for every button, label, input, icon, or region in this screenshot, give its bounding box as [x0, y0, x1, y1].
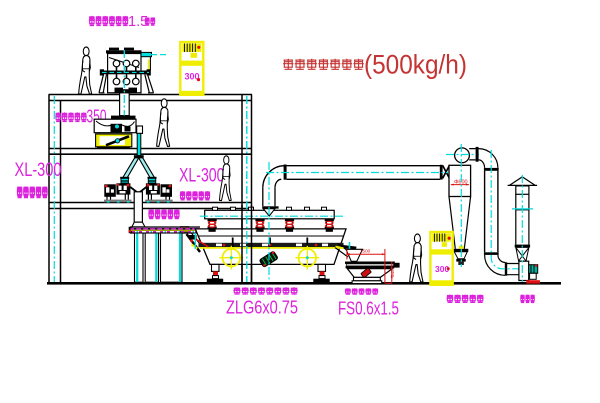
svg-text:FS0.6x1.5: FS0.6x1.5: [338, 298, 399, 319]
svg-text:1500: 1500: [360, 249, 371, 254]
svg-text:XL-300: XL-300: [179, 165, 225, 187]
svg-text:XL-300: XL-300: [15, 159, 62, 181]
svg-text:ZLG6x0.75: ZLG6x0.75: [226, 298, 298, 318]
svg-text:345: 345: [390, 269, 395, 277]
svg-text:(500kg/h): (500kg/h): [364, 50, 467, 80]
